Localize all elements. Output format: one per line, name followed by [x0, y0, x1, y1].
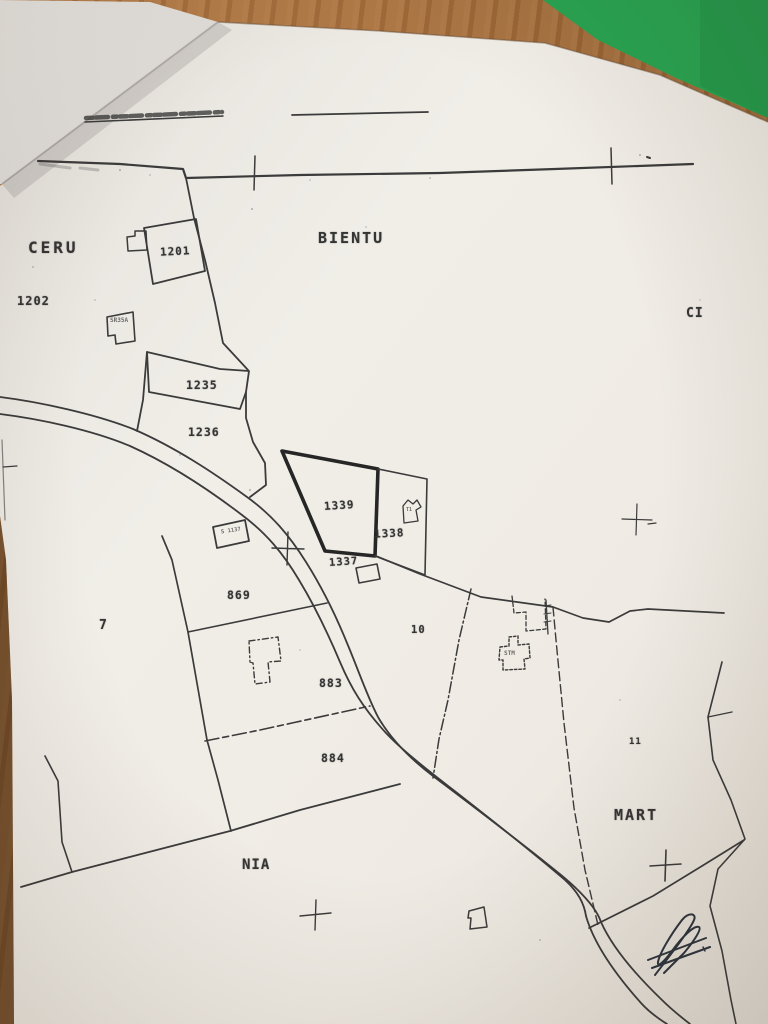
region-label-ceru: CERU — [28, 238, 79, 257]
region-label-bientu: BIENTU — [318, 229, 384, 247]
parcel-label-869: 869 — [227, 588, 251, 602]
building-label-stm: STM — [504, 650, 515, 657]
building-label-t1: T1 — [406, 507, 412, 513]
building-label-sr35a: SR35A — [110, 317, 128, 324]
map-drawing — [0, 0, 768, 1024]
parcel-label-883: 883 — [319, 676, 343, 690]
parcel-label-1235: 1235 — [186, 378, 218, 392]
photo-of-cadastral-map: CERU BIENTU CI MART NIA 1202 1201 1235 1… — [0, 0, 768, 1024]
parcel-label-1201: 1201 — [160, 244, 191, 259]
parcel-label-1202: 1202 — [17, 294, 50, 308]
parcel-label-1236: 1236 — [188, 425, 220, 439]
parcel-label-1339: 1339 — [324, 498, 355, 513]
parcel-label-1337: 1337 — [329, 555, 359, 569]
region-label-nia: NIA — [242, 857, 270, 873]
parcel-label-884: 884 — [321, 751, 345, 765]
parcel-label-10: 10 — [411, 624, 426, 636]
parcel-label-11: 11 — [629, 737, 642, 747]
parcel-label-1338: 1338 — [374, 526, 405, 541]
region-label-mart: MART — [614, 806, 658, 824]
region-label-ci: CI — [686, 306, 704, 321]
parcel-label-7: 7 — [99, 618, 108, 633]
